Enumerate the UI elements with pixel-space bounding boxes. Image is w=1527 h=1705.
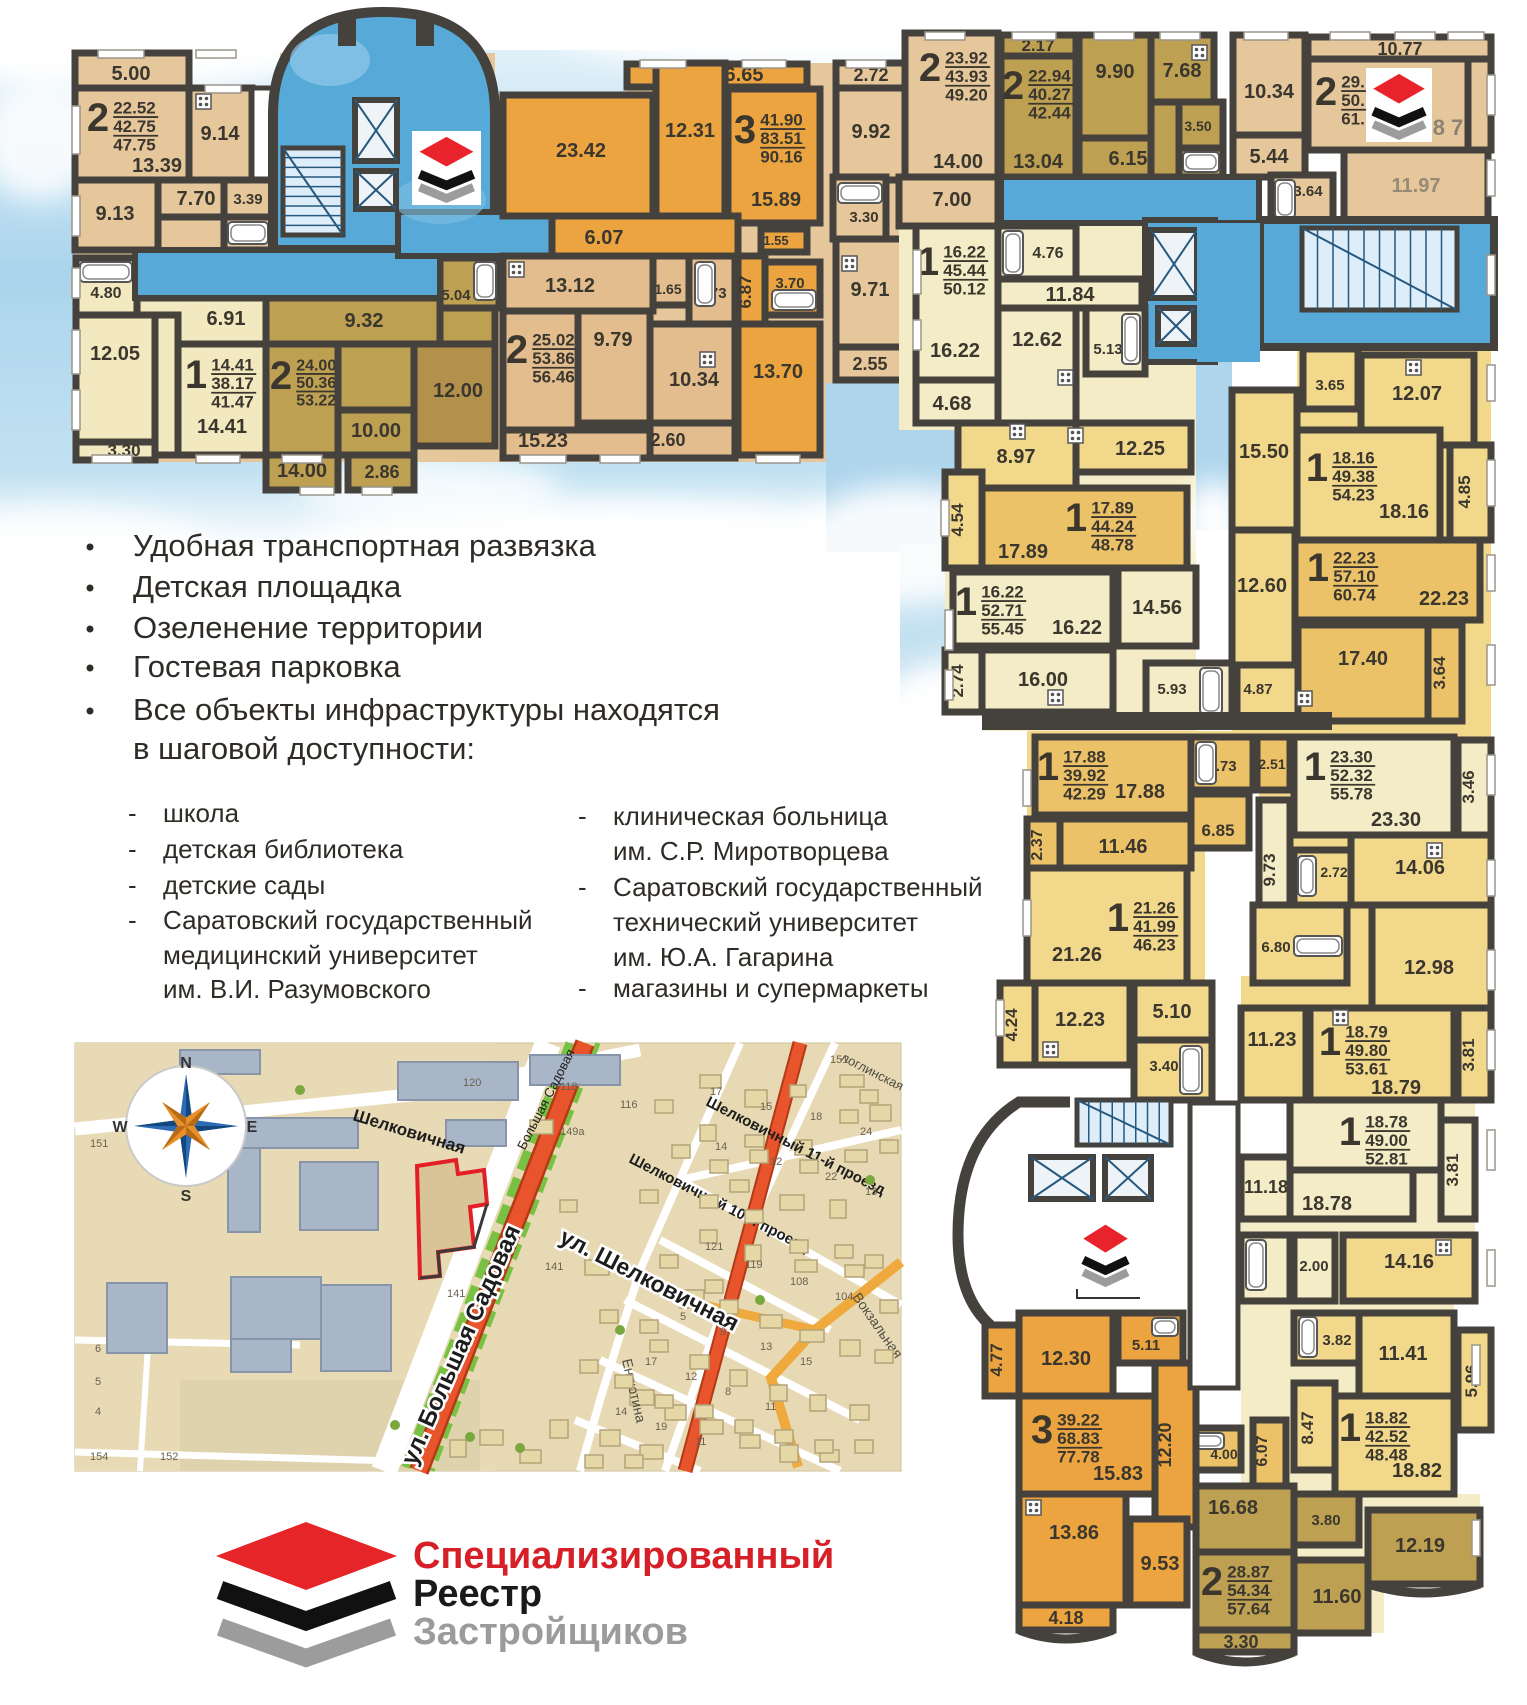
svg-text:13.12: 13.12 [545, 275, 595, 297]
svg-text:14.56: 14.56 [1132, 597, 1182, 619]
svg-text:44.24: 44.24 [1091, 517, 1134, 536]
svg-text:5.04: 5.04 [441, 287, 471, 304]
svg-text:1: 1 [1307, 546, 1329, 590]
svg-text:118: 118 [560, 1081, 578, 1093]
svg-text:5.93: 5.93 [1157, 681, 1186, 698]
svg-text:2: 2 [1002, 64, 1024, 108]
svg-text:21.26: 21.26 [1052, 944, 1102, 966]
svg-text:24: 24 [860, 1126, 872, 1138]
svg-text:Специализированный: Специализированный [413, 1535, 834, 1577]
svg-text:16.68: 16.68 [1208, 1497, 1258, 1519]
svg-text:41.47: 41.47 [211, 393, 254, 412]
svg-text:Застройщиков: Застройщиков [413, 1611, 688, 1653]
svg-text:1: 1 [1107, 896, 1129, 940]
svg-text:2.86: 2.86 [364, 462, 399, 482]
svg-text:12.62: 12.62 [1012, 329, 1062, 351]
svg-text:61.: 61. [1341, 110, 1365, 129]
svg-text:1: 1 [955, 580, 977, 624]
svg-text:15.89: 15.89 [751, 189, 801, 211]
svg-text:11.46: 11.46 [1099, 836, 1148, 858]
svg-text:9.73: 9.73 [1260, 853, 1279, 886]
svg-text:12.00: 12.00 [433, 380, 483, 402]
svg-text:120: 120 [463, 1077, 481, 1089]
svg-text:13.39: 13.39 [132, 155, 182, 177]
svg-text:-: - [578, 801, 587, 831]
svg-text:Реестр: Реестр [413, 1573, 542, 1615]
svg-text:13: 13 [865, 1186, 877, 1198]
svg-text:Саратовский государственный: Саратовский государственный [613, 872, 983, 902]
svg-text:151: 151 [90, 1138, 108, 1150]
svg-text:18: 18 [810, 1111, 822, 1123]
svg-text:49.20: 49.20 [945, 86, 988, 105]
svg-text:28.87: 28.87 [1227, 1562, 1270, 1581]
svg-text:11.84: 11.84 [1046, 284, 1096, 306]
svg-text:12.23: 12.23 [1055, 1009, 1105, 1031]
svg-text:8.97: 8.97 [997, 446, 1036, 468]
svg-text:2: 2 [87, 96, 109, 140]
svg-text:5.13: 5.13 [1093, 341, 1122, 358]
svg-text:W: W [112, 1119, 128, 1136]
svg-text:11: 11 [765, 1401, 776, 1413]
svg-text:1: 1 [1339, 1406, 1361, 1450]
svg-text:22.23: 22.23 [1333, 548, 1376, 567]
svg-text:4.80: 4.80 [90, 285, 121, 302]
svg-text:N: N [180, 1055, 192, 1072]
svg-text:9.79: 9.79 [594, 329, 633, 351]
svg-text:151: 151 [830, 1054, 848, 1066]
svg-text:1.65: 1.65 [654, 281, 681, 297]
svg-text:2.37: 2.37 [1029, 829, 1046, 860]
svg-text:3.39: 3.39 [233, 191, 262, 208]
svg-text:7.00: 7.00 [933, 189, 972, 211]
svg-text:12.98: 12.98 [1404, 957, 1454, 979]
svg-text:4: 4 [95, 1406, 101, 1418]
svg-text:6.07: 6.07 [1254, 1435, 1271, 1466]
svg-text:1: 1 [1339, 1110, 1361, 1154]
svg-text:60.74: 60.74 [1333, 586, 1376, 605]
svg-text:11.60: 11.60 [1313, 1586, 1362, 1608]
svg-text:11.18: 11.18 [1244, 1177, 1288, 1197]
svg-text:-: - [128, 834, 137, 864]
svg-text:9.90: 9.90 [1096, 61, 1135, 83]
svg-text:11.41: 11.41 [1379, 1343, 1428, 1365]
svg-text:детская библиотека: детская библиотека [163, 834, 404, 864]
svg-text:8.47: 8.47 [1298, 1411, 1317, 1444]
svg-text:56.46: 56.46 [532, 368, 575, 387]
svg-text:17.89: 17.89 [998, 541, 1048, 563]
svg-text:17: 17 [645, 1356, 657, 1368]
svg-text:6.85: 6.85 [1201, 821, 1234, 840]
svg-text:13.04: 13.04 [1013, 151, 1064, 173]
svg-text:9.71: 9.71 [851, 279, 890, 301]
svg-text:школа: школа [163, 798, 240, 828]
svg-text:Саратовский государственный: Саратовский государственный [163, 905, 533, 935]
svg-text:48.78: 48.78 [1091, 536, 1134, 555]
svg-text:49.00: 49.00 [1365, 1131, 1408, 1150]
svg-text:8 7: 8 7 [1433, 115, 1464, 140]
svg-text:50.12: 50.12 [943, 280, 986, 299]
svg-text:9.92: 9.92 [852, 121, 891, 143]
svg-text:15.23: 15.23 [518, 430, 568, 452]
svg-text:17.88: 17.88 [1115, 781, 1165, 803]
svg-text:Гостевая парковка: Гостевая парковка [133, 649, 401, 684]
svg-text:15: 15 [800, 1356, 812, 1368]
svg-text:им. Ю.А. Гагарина: им. Ю.А. Гагарина [613, 942, 834, 972]
svg-text:4.76: 4.76 [1032, 245, 1063, 262]
svg-text:3.46: 3.46 [1459, 770, 1478, 803]
svg-text:8: 8 [725, 1386, 731, 1398]
svg-text:6.80: 6.80 [1261, 939, 1290, 956]
svg-text:E: E [247, 1119, 258, 1136]
svg-text:3: 3 [734, 108, 756, 152]
svg-text:49.80: 49.80 [1345, 1041, 1388, 1060]
svg-text:55.45: 55.45 [981, 620, 1024, 639]
svg-text:2: 2 [1201, 1560, 1223, 1604]
svg-text:Детская площадка: Детская площадка [133, 569, 402, 604]
svg-text:141: 141 [447, 1288, 465, 1300]
svg-text:3.64: 3.64 [1430, 656, 1449, 690]
svg-text:14.00: 14.00 [933, 151, 983, 173]
svg-text:16.22: 16.22 [930, 340, 980, 362]
svg-text:52.81: 52.81 [1365, 1150, 1408, 1169]
svg-text:23.92: 23.92 [945, 48, 988, 67]
svg-text:7.70: 7.70 [177, 188, 216, 210]
svg-text:68.83: 68.83 [1057, 1429, 1100, 1448]
svg-text:42.52: 42.52 [1365, 1427, 1408, 1446]
svg-text:18.16: 18.16 [1332, 448, 1375, 467]
svg-text:12: 12 [770, 1156, 782, 1168]
svg-text:3.50: 3.50 [1184, 118, 1211, 134]
svg-text:клиническая больница: клиническая больница [613, 801, 888, 831]
svg-text:12.31: 12.31 [665, 120, 715, 142]
svg-text:18.78: 18.78 [1365, 1112, 1408, 1131]
svg-text:-: - [128, 798, 137, 828]
svg-text:9.53: 9.53 [1141, 1553, 1180, 1575]
svg-text:119: 119 [745, 1259, 763, 1271]
svg-text:2.51: 2.51 [1258, 756, 1285, 772]
svg-text:1: 1 [1306, 446, 1328, 490]
svg-text:12.05: 12.05 [90, 343, 140, 365]
svg-text:16.22: 16.22 [1052, 617, 1102, 639]
svg-text:им. С.Р. Миротворцева: им. С.Р. Миротворцева [613, 836, 889, 866]
svg-text:3.30: 3.30 [1223, 1632, 1258, 1652]
svg-text:49.38: 49.38 [1332, 467, 1375, 486]
svg-text:12: 12 [685, 1371, 697, 1383]
svg-text:медицинский университет: медицинский университет [163, 940, 478, 970]
svg-text:10.34: 10.34 [1244, 81, 1295, 103]
svg-text:3.65: 3.65 [1315, 377, 1344, 394]
svg-text:154: 154 [90, 1451, 108, 1463]
svg-text:5.11: 5.11 [1132, 1337, 1160, 1354]
svg-text:24.00: 24.00 [296, 357, 336, 374]
svg-text:108: 108 [790, 1276, 808, 1288]
svg-text:43.93: 43.93 [945, 67, 988, 86]
svg-text:4.85: 4.85 [1455, 475, 1474, 508]
svg-text:6.87: 6.87 [736, 275, 755, 308]
svg-text:1: 1 [1304, 745, 1326, 789]
svg-text:18.16: 18.16 [1379, 501, 1429, 523]
svg-text:15.83: 15.83 [1093, 1463, 1143, 1485]
svg-text:3.80: 3.80 [1311, 1512, 1340, 1529]
svg-text:им. В.И. Разумовского: им. В.И. Разумовского [163, 974, 431, 1004]
svg-text:141: 141 [545, 1261, 563, 1273]
svg-text:54.23: 54.23 [1332, 486, 1375, 505]
svg-text:38.17: 38.17 [211, 374, 254, 393]
svg-text:17: 17 [710, 1086, 722, 1098]
svg-text:6.91: 6.91 [207, 308, 246, 330]
svg-text:10.00: 10.00 [351, 420, 401, 442]
svg-text:4.68: 4.68 [933, 393, 972, 415]
svg-text:1: 1 [185, 353, 207, 397]
svg-text:3.81: 3.81 [1459, 1038, 1478, 1071]
svg-text:4.87: 4.87 [1243, 681, 1272, 698]
svg-text:21.26: 21.26 [1133, 898, 1176, 917]
svg-text:4.24: 4.24 [1002, 1008, 1021, 1042]
svg-text:90.16: 90.16 [760, 148, 803, 167]
svg-text:4.54: 4.54 [948, 503, 967, 537]
svg-text:29.: 29. [1341, 72, 1365, 91]
svg-text:12.25: 12.25 [1115, 438, 1165, 460]
svg-text:3.30: 3.30 [849, 209, 878, 226]
svg-text:45.44: 45.44 [943, 261, 986, 280]
svg-text:53.22: 53.22 [296, 393, 336, 410]
svg-text:41.99: 41.99 [1133, 917, 1176, 936]
svg-text:3: 3 [1031, 1408, 1053, 1452]
svg-text:14.41: 14.41 [211, 355, 254, 374]
svg-text:17.88: 17.88 [1063, 747, 1106, 766]
svg-text:4.77: 4.77 [987, 1343, 1006, 1376]
svg-text:50.36: 50.36 [296, 375, 336, 392]
svg-text:12.30: 12.30 [1041, 1348, 1091, 1370]
svg-text:6.15: 6.15 [1109, 148, 1148, 170]
svg-text:13.70: 13.70 [753, 361, 803, 383]
svg-text:53.86: 53.86 [532, 349, 575, 368]
svg-text:9.32: 9.32 [345, 310, 384, 332]
svg-text:1: 1 [1037, 745, 1059, 789]
svg-text:13: 13 [760, 1341, 772, 1353]
svg-text:3.64: 3.64 [1293, 183, 1323, 200]
svg-text:3.81: 3.81 [1443, 1153, 1462, 1186]
svg-text:104: 104 [835, 1291, 853, 1303]
svg-text:14: 14 [615, 1406, 627, 1418]
svg-text:детские сады: детские сады [163, 870, 325, 900]
svg-text:18.79: 18.79 [1371, 1077, 1421, 1099]
svg-text:6: 6 [95, 1343, 101, 1355]
svg-text:3.40: 3.40 [1149, 1058, 1178, 1075]
svg-text:39.22: 39.22 [1057, 1410, 1100, 1429]
svg-text:9.13: 9.13 [96, 203, 135, 225]
svg-text:Удобная транспортная развязка: Удобная транспортная развязка [133, 528, 597, 563]
svg-text:5.10: 5.10 [1153, 1001, 1192, 1023]
svg-text:18.78: 18.78 [1302, 1193, 1352, 1215]
svg-text:53.61: 53.61 [1345, 1060, 1388, 1079]
svg-text:6.07: 6.07 [585, 227, 624, 249]
svg-text:11.97: 11.97 [1392, 175, 1441, 197]
svg-text:50.: 50. [1341, 91, 1365, 110]
svg-text:16.00: 16.00 [1018, 669, 1068, 691]
svg-text:5.00: 5.00 [112, 63, 151, 85]
svg-text:5: 5 [680, 1311, 686, 1323]
svg-text:Все объекты инфраструктуры нах: Все объекты инфраструктуры находятся [133, 692, 720, 727]
svg-text:технический университет: технический университет [613, 907, 918, 937]
svg-text:42.29: 42.29 [1063, 785, 1106, 804]
svg-text:9.14: 9.14 [201, 123, 241, 145]
svg-text:1.55: 1.55 [763, 233, 788, 248]
svg-text:9: 9 [720, 1326, 726, 1338]
svg-text:11.23: 11.23 [1248, 1029, 1297, 1051]
svg-text:в шаговой доступности:: в шаговой доступности: [133, 731, 475, 766]
svg-text:22: 22 [825, 1171, 837, 1183]
svg-text:3.82: 3.82 [1322, 1332, 1351, 1349]
svg-text:22.23: 22.23 [1419, 588, 1469, 610]
svg-text:152: 152 [160, 1451, 178, 1463]
svg-text:121: 121 [705, 1241, 723, 1253]
svg-text:18.82: 18.82 [1365, 1408, 1408, 1427]
svg-text:54.34: 54.34 [1227, 1581, 1270, 1600]
svg-text:-: - [128, 905, 137, 935]
svg-text:16.22: 16.22 [981, 582, 1024, 601]
svg-text:15: 15 [760, 1101, 772, 1113]
svg-text:42.44: 42.44 [1028, 104, 1071, 123]
svg-text:55.78: 55.78 [1330, 785, 1373, 804]
svg-text:40.27: 40.27 [1028, 85, 1071, 104]
svg-text:42.75: 42.75 [113, 117, 156, 136]
svg-text:11: 11 [695, 1436, 706, 1448]
svg-text:39.92: 39.92 [1063, 766, 1106, 785]
svg-text:5.44: 5.44 [1250, 146, 1290, 168]
svg-text:16.22: 16.22 [943, 242, 986, 261]
svg-text:14: 14 [715, 1141, 727, 1153]
svg-text:18.79: 18.79 [1345, 1022, 1388, 1041]
svg-text:52.32: 52.32 [1330, 766, 1373, 785]
svg-text:46.23: 46.23 [1133, 936, 1176, 955]
svg-text:47.75: 47.75 [113, 136, 156, 155]
svg-text:-: - [578, 872, 587, 902]
svg-text:4.18: 4.18 [1048, 1608, 1083, 1628]
svg-text:12.19: 12.19 [1395, 1535, 1445, 1557]
svg-text:22.52: 22.52 [113, 98, 156, 117]
svg-text:2: 2 [270, 354, 292, 398]
svg-text:13.86: 13.86 [1049, 1522, 1099, 1544]
svg-text:2: 2 [919, 46, 941, 90]
svg-text:41.90: 41.90 [760, 110, 803, 129]
svg-text:10.34: 10.34 [669, 369, 720, 391]
svg-text:22.94: 22.94 [1028, 66, 1071, 85]
svg-text:25.02: 25.02 [532, 330, 575, 349]
svg-text:7.68: 7.68 [1163, 60, 1202, 82]
svg-text:-: - [128, 870, 137, 900]
svg-text:18.82: 18.82 [1392, 1460, 1442, 1482]
svg-text:23.30: 23.30 [1371, 809, 1421, 831]
svg-text:2.00: 2.00 [1299, 1258, 1328, 1275]
svg-text:1: 1 [1065, 496, 1087, 540]
svg-text:19: 19 [655, 1421, 667, 1433]
svg-text:14.41: 14.41 [197, 416, 247, 438]
svg-text:1: 1 [1319, 1020, 1341, 1064]
svg-text:5: 5 [95, 1376, 101, 1388]
svg-text:57.64: 57.64 [1227, 1600, 1270, 1619]
svg-text:14.16: 14.16 [1384, 1251, 1434, 1273]
svg-text:12.07: 12.07 [1392, 383, 1442, 405]
svg-text:57.10: 57.10 [1333, 567, 1376, 586]
svg-text:2: 2 [1315, 70, 1337, 114]
svg-text:-: - [578, 973, 587, 1003]
svg-text:83.51: 83.51 [760, 129, 803, 148]
svg-text:17.40: 17.40 [1338, 648, 1388, 670]
svg-text:15.50: 15.50 [1239, 441, 1289, 463]
svg-text:23.42: 23.42 [556, 140, 606, 162]
svg-text:52.71: 52.71 [981, 601, 1024, 620]
svg-text:2: 2 [506, 328, 528, 372]
svg-text:14.06: 14.06 [1395, 857, 1445, 879]
svg-text:116: 116 [620, 1099, 638, 1111]
svg-text:магазины и супермаркеты: магазины и супермаркеты [613, 973, 929, 1003]
svg-text:149а: 149а [560, 1126, 585, 1138]
svg-text:2.72: 2.72 [1320, 864, 1347, 880]
svg-text:S: S [181, 1188, 192, 1205]
svg-text:2.60: 2.60 [650, 430, 685, 450]
svg-text:23.30: 23.30 [1330, 747, 1373, 766]
svg-text:12.60: 12.60 [1237, 575, 1287, 597]
svg-text:2.55: 2.55 [852, 354, 887, 374]
svg-text:Озеленение территории: Озеленение территории [133, 610, 483, 645]
svg-text:17.89: 17.89 [1091, 498, 1134, 517]
